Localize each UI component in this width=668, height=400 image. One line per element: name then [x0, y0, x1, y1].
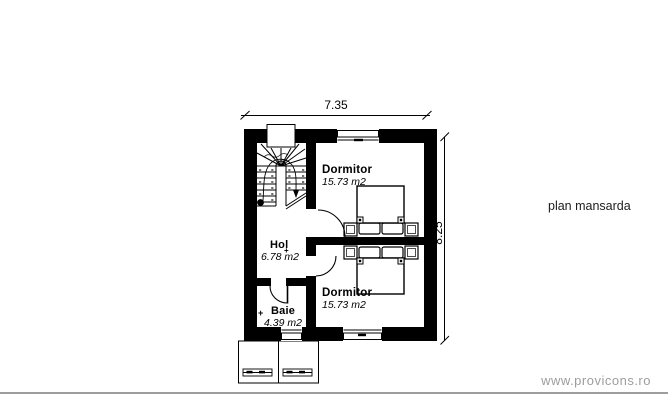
pillow — [359, 223, 380, 234]
stair-newel-post — [257, 199, 264, 206]
room-label-baie: Baie 4.39 m2 — [264, 306, 302, 329]
cross-marker-hol: + — [284, 246, 289, 255]
dimension-width-label: 7.35 — [316, 98, 356, 112]
skylight-top — [267, 125, 295, 148]
page-title: plan mansarda — [548, 199, 631, 213]
door-dormitor-bottom — [316, 256, 336, 276]
window-top-right — [337, 129, 379, 143]
footer-divider — [0, 392, 668, 394]
pillow — [382, 247, 403, 258]
door-baie — [270, 286, 287, 303]
stair-walk-arrowhead — [293, 190, 299, 198]
room-name: Hol — [261, 240, 299, 251]
website-watermark: www.provicons.ro — [541, 373, 651, 388]
window-bottom-right — [343, 327, 382, 341]
window-bottom-left — [281, 327, 302, 341]
room-area: 6.78 m2 — [261, 251, 299, 263]
balcony-outline — [239, 341, 319, 383]
pillow — [382, 223, 403, 234]
room-area: 15.73 m2 — [322, 176, 372, 188]
floor-plan-page: 7.35 8.25 Dormitor 15.73 m2 Dormitor 15.… — [0, 0, 668, 400]
room-label-hol: Hol 6.78 m2 — [261, 240, 299, 263]
room-label-dormitor-bottom: Dormitor 15.73 m2 — [322, 288, 372, 311]
mattress — [357, 186, 404, 223]
bed-dormitor-top — [344, 186, 418, 236]
dimension-height-label: 8.25 — [431, 218, 445, 248]
room-area: 4.39 m2 — [264, 317, 302, 329]
room-label-dormitor-top: Dormitor 15.73 m2 — [322, 165, 372, 188]
cross-marker-baie: + — [258, 309, 263, 318]
staircase — [257, 144, 306, 209]
room-area: 15.73 m2 — [322, 299, 372, 311]
room-name: Baie — [264, 306, 302, 317]
door-dormitor-top — [318, 210, 345, 237]
room-name: Dormitor — [322, 165, 372, 176]
room-name: Dormitor — [322, 288, 372, 299]
pillow — [359, 247, 380, 258]
